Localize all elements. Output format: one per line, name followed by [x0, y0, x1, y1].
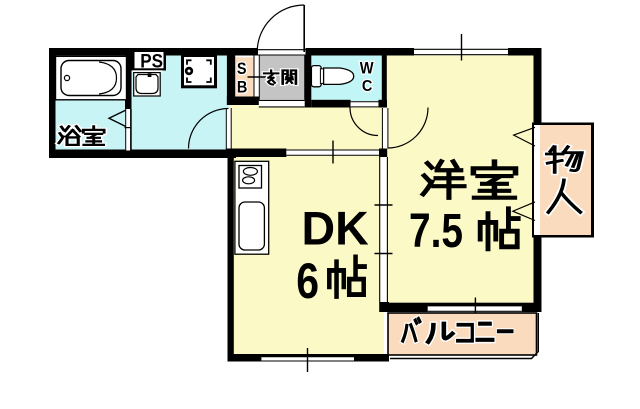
svg-text:DK: DK — [302, 202, 369, 254]
svg-text:S: S — [237, 60, 247, 78]
svg-text:7.5: 7.5 — [409, 204, 463, 258]
svg-text:PS: PS — [140, 49, 163, 71]
svg-text:6: 6 — [296, 253, 319, 309]
svg-text:W: W — [360, 60, 374, 78]
svg-text:B: B — [237, 78, 247, 96]
svg-text:C: C — [362, 77, 373, 95]
